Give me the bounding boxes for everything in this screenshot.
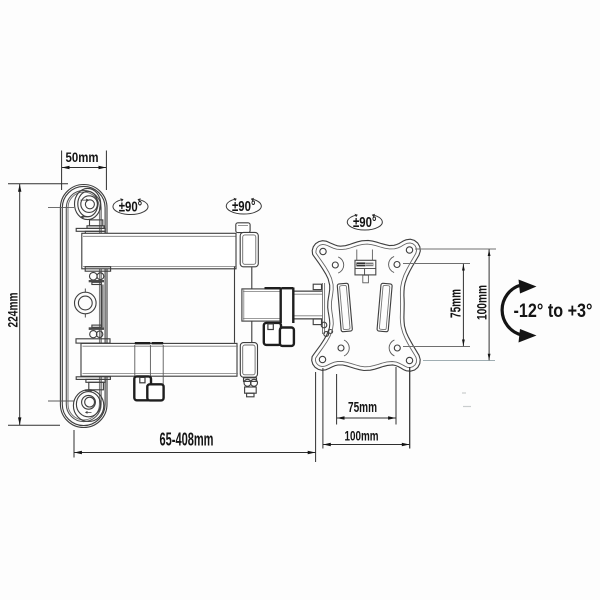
svg-text:75mm: 75mm (348, 399, 377, 416)
svg-text:±90°: ±90° (353, 215, 377, 231)
svg-text:±90°: ±90° (232, 199, 256, 215)
svg-text:50mm: 50mm (66, 149, 99, 165)
svg-text:224mm: 224mm (4, 293, 20, 328)
svg-text:65-408mm: 65-408mm (160, 428, 214, 449)
svg-text:100mm: 100mm (345, 427, 379, 443)
svg-text:-12° to +3°: -12° to +3° (514, 300, 593, 322)
svg-text:75mm: 75mm (448, 289, 465, 318)
svg-text:±90°: ±90° (119, 200, 143, 216)
svg-text:100mm: 100mm (474, 285, 490, 320)
